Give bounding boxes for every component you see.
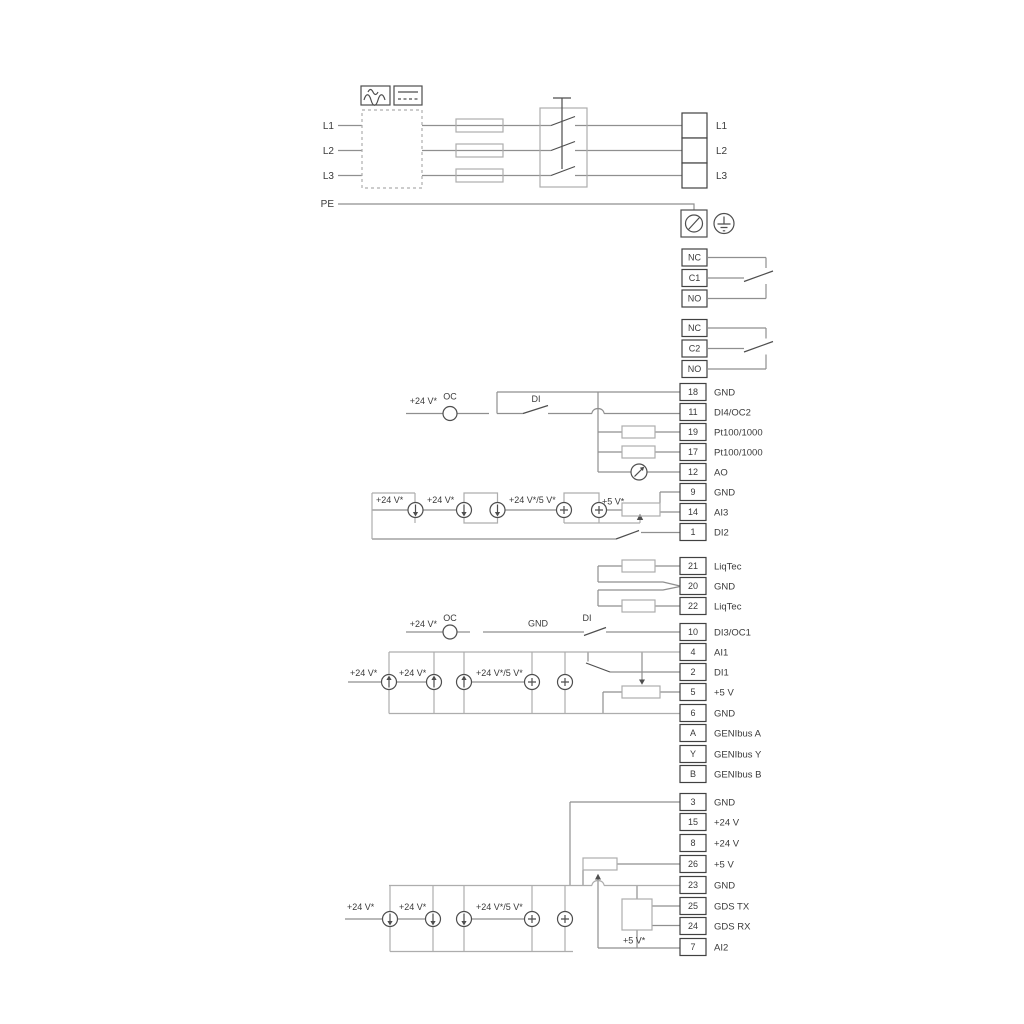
- terminal-number: 15: [688, 817, 698, 827]
- terminal-label: +24 V: [714, 817, 740, 828]
- terminal-group-middle: 10DI3/OC14AI12DI15+5 V6GNDAGENIbus AYGEN…: [680, 624, 762, 783]
- potentiometer-icon: [583, 858, 617, 870]
- io-upper-rails: [372, 493, 640, 539]
- label-l1-left: L1: [323, 121, 335, 132]
- source-symbols: [382, 503, 607, 927]
- terminal-label: AI1: [714, 647, 728, 658]
- label-l2-right: L2: [716, 146, 728, 157]
- current-source-icon: [457, 675, 472, 690]
- label-di: DI: [583, 613, 592, 623]
- current-source-icon: [490, 503, 505, 518]
- terminal-number: 8: [690, 838, 695, 848]
- voltage-source-icon: [525, 675, 540, 690]
- terminal-row-12: 12AO: [680, 464, 728, 481]
- terminal-number: 2: [690, 667, 695, 677]
- relay-2-terminals: NCC2NO: [682, 320, 707, 378]
- terminal-label: Pt100/1000: [714, 427, 763, 438]
- label-24v: +24 V*: [410, 619, 438, 629]
- wiring-diagram: L1 L2 L3 PE L1L2L3: [0, 0, 1024, 1024]
- label-oc: OC: [443, 613, 457, 623]
- ac-symbol-icon: [361, 86, 390, 105]
- terminal-row-24: 24GDS RX: [680, 918, 751, 935]
- current-source-icon: [426, 912, 441, 927]
- relay-1-contact-icon: [744, 271, 773, 282]
- terminal-number: A: [690, 728, 696, 738]
- terminal-label: DI3/OC1: [714, 627, 751, 638]
- resistor-icon: [622, 426, 655, 438]
- label-24v: +24 V*: [410, 396, 438, 406]
- power-terminal-box: [682, 113, 707, 138]
- ai2-arrow-icon: [595, 874, 601, 880]
- relay-terminal-label: C1: [689, 273, 701, 283]
- terminal-row-17: 17Pt100/1000: [680, 444, 763, 461]
- relay-1-wires: [707, 258, 766, 299]
- terminal-label: GND: [714, 581, 735, 592]
- terminal-row-11: 11DI4/OC2: [680, 404, 751, 421]
- terminal-number: B: [690, 769, 696, 779]
- pot-wiper-arrow-icon: [637, 514, 643, 520]
- terminal-number: 4: [690, 647, 695, 657]
- terminal-row-21: 21LiqTec: [680, 558, 742, 575]
- label-24v: +24 V*: [399, 902, 427, 912]
- terminal-row-25: 25GDS TX: [680, 898, 750, 915]
- terminal-number: 12: [688, 467, 698, 477]
- terminal-row-18: 18GND: [680, 384, 735, 401]
- label-gnd: GND: [528, 619, 549, 629]
- terminal-row-Y: YGENIbus Y: [680, 746, 762, 763]
- terminal-label: AI2: [714, 942, 728, 953]
- terminal-number: 19: [688, 427, 698, 437]
- terminal-number: 3: [690, 797, 695, 807]
- terminal-label: GND: [714, 387, 735, 398]
- terminal-label: LiqTec: [714, 601, 742, 612]
- terminal-label: GDS TX: [714, 901, 750, 912]
- current-source-icon: [408, 503, 423, 518]
- terminal-label: DI4/OC2: [714, 407, 751, 418]
- label-24v-5v: +24 V*/5 V*: [509, 495, 556, 505]
- terminal-label: GDS RX: [714, 921, 751, 932]
- di4-switch-contact-icon: [523, 406, 548, 414]
- relay-terminal-label: NO: [688, 364, 702, 374]
- terminal-row-20: 20GND: [680, 578, 735, 595]
- terminal-row-22: 22LiqTec: [680, 598, 742, 615]
- di2-switch-contact-icon: [616, 531, 639, 540]
- resistor-icon: [622, 600, 655, 612]
- current-source-icon: [457, 503, 472, 518]
- terminal-row-19: 19Pt100/1000: [680, 424, 763, 441]
- terminal-number: 21: [688, 561, 698, 571]
- pe-terminal-icon: [681, 210, 707, 237]
- label-24v: +24 V*: [347, 902, 375, 912]
- terminal-number: 10: [688, 627, 698, 637]
- io-liqtec-section: 21LiqTec20GND22LiqTec: [598, 558, 742, 615]
- terminal-row-15: 15+24 V: [680, 814, 740, 831]
- terminal-label: +5 V: [714, 859, 734, 870]
- relay-terminal-label: C2: [689, 344, 701, 354]
- label-24v: +24 V*: [399, 668, 427, 678]
- terminal-number: 23: [688, 880, 698, 890]
- label-24v: +24 V*: [376, 495, 404, 505]
- terminal-label: DI2: [714, 527, 729, 538]
- potentiometer-icon: [622, 503, 660, 516]
- current-source-icon: [457, 912, 472, 927]
- io-lower-wires: [345, 802, 680, 948]
- open-collector-icon: [443, 407, 457, 421]
- terminal-number: 24: [688, 921, 698, 931]
- voltage-source-icon: [557, 503, 572, 518]
- voltage-source-icon: [525, 912, 540, 927]
- terminal-row-4: 4AI1: [680, 644, 728, 661]
- terminal-label: GND: [714, 487, 735, 498]
- terminal-row-6: 6GND: [680, 705, 735, 722]
- voltage-source-icon: [558, 675, 573, 690]
- label-24v: +24 V*: [350, 668, 378, 678]
- terminal-label: GENIbus Y: [714, 749, 762, 760]
- open-collector-icon: [443, 625, 457, 639]
- earth-icon: [714, 214, 734, 234]
- terminal-number: 11: [688, 407, 697, 417]
- terminal-number: 18: [688, 387, 698, 397]
- current-source-icon: [427, 675, 442, 690]
- label-l2-left: L2: [323, 146, 335, 157]
- ao-meter-icon: [631, 464, 647, 480]
- terminal-number: 9: [690, 487, 695, 497]
- filter-box: [362, 110, 422, 188]
- relay-2-wires: [707, 328, 766, 369]
- resistor-icon: [622, 560, 655, 572]
- terminal-row-B: BGENIbus B: [680, 766, 762, 783]
- gds-sensor-box: [622, 899, 652, 930]
- terminal-label: AO: [714, 467, 728, 478]
- power-terminal-box: [682, 138, 707, 163]
- terminal-row-3: 3GND: [680, 794, 735, 811]
- terminal-number: 22: [688, 601, 698, 611]
- terminal-row-2: 2DI1: [680, 664, 729, 681]
- potentiometer-symbols: [583, 503, 660, 870]
- terminal-label: +5 V: [714, 687, 734, 698]
- terminal-number: 7: [690, 942, 695, 952]
- terminal-label: LiqTec: [714, 561, 742, 572]
- io-middle-section: +24 V* OC GND DI +24 V* +24 V* +24 V*/5 …: [348, 613, 762, 783]
- terminal-row-7: 7AI2: [680, 939, 728, 956]
- terminal-number: 17: [688, 447, 698, 457]
- label-l3-right: L3: [716, 171, 728, 182]
- wiring-diagram-page: L1 L2 L3 PE L1L2L3: [0, 0, 1024, 1024]
- label-l1-right: L1: [716, 121, 728, 132]
- power-terminal-box: [682, 163, 707, 188]
- terminal-number: 25: [688, 901, 698, 911]
- relay-1-terminals: NCC1NO: [682, 249, 707, 307]
- terminal-row-23: 23GND: [680, 877, 735, 894]
- label-5v: +5 V*: [623, 936, 646, 946]
- terminal-number: 1: [690, 527, 695, 537]
- voltage-source-icon: [558, 912, 573, 927]
- terminal-row-14: 14AI3: [680, 504, 728, 521]
- di1-switch-contact-icon: [586, 663, 610, 672]
- voltage-source-icon: [592, 503, 607, 518]
- current-source-icon: [383, 912, 398, 927]
- phase-wires: [338, 126, 682, 176]
- label-oc: OC: [443, 392, 457, 402]
- current-source-icon: [382, 675, 397, 690]
- label-pe-left: PE: [321, 199, 335, 210]
- power-terminal-block: L1L2L3: [682, 113, 728, 188]
- terminal-number: 5: [690, 687, 695, 697]
- terminal-row-9: 9GND: [680, 484, 735, 501]
- relay-terminal-label: NC: [688, 323, 701, 333]
- terminal-label: DI1: [714, 667, 729, 678]
- dc-symbol-icon: [394, 86, 422, 105]
- terminal-row-1: 1DI2: [680, 524, 729, 541]
- relay-2-contact-icon: [744, 342, 773, 353]
- terminal-label: GND: [714, 708, 735, 719]
- relay-2-section: NCC2NO: [682, 320, 773, 378]
- label-24v-5v: +24 V*/5 V*: [476, 902, 523, 912]
- terminal-group-lower: 3GND15+24 V8+24 V26+5 V23GND25GDS TX24GD…: [680, 794, 751, 956]
- relay-1-section: NCC1NO: [682, 249, 773, 307]
- terminal-number: 6: [690, 708, 695, 718]
- label-l3-left: L3: [323, 171, 335, 182]
- terminal-row-10: 10DI3/OC1: [680, 624, 751, 641]
- power-input-section: L1 L2 L3 PE L1L2L3: [321, 86, 734, 237]
- terminal-row-A: AGENIbus A: [680, 725, 762, 742]
- terminal-group-liqtec: 21LiqTec20GND22LiqTec: [680, 558, 742, 615]
- terminal-label: GND: [714, 797, 735, 808]
- relay-terminal-label: NC: [688, 253, 701, 263]
- terminal-label: GENIbus B: [714, 769, 762, 780]
- di3-switch-contact-icon: [584, 628, 606, 636]
- terminal-row-8: 8+24 V: [680, 835, 740, 852]
- terminal-label: AI3: [714, 507, 728, 518]
- terminal-group-upper: 18GND11DI4/OC219Pt100/100017Pt100/100012…: [680, 384, 763, 541]
- terminal-row-5: 5+5 V: [680, 684, 734, 701]
- terminal-label: GND: [714, 880, 735, 891]
- terminal-row-26: 26+5 V: [680, 856, 734, 873]
- label-24v: +24 V*: [427, 495, 455, 505]
- ai1-arrow-icon: [639, 680, 645, 685]
- terminal-number: 26: [688, 859, 698, 869]
- terminal-label: +24 V: [714, 838, 740, 849]
- label-5v: +5 V*: [602, 497, 625, 507]
- terminal-label: GENIbus A: [714, 728, 762, 739]
- io-middle-rails: [389, 652, 680, 714]
- label-di: DI: [532, 394, 541, 404]
- terminal-label: Pt100/1000: [714, 447, 763, 458]
- terminal-number: 20: [688, 581, 698, 591]
- relay-terminal-label: NO: [688, 294, 702, 304]
- terminal-number: 14: [688, 507, 698, 517]
- potentiometer-icon: [622, 686, 660, 698]
- label-24v-5v: +24 V*/5 V*: [476, 668, 523, 678]
- pe-wire: [338, 204, 694, 210]
- io-lower-section: +24 V* +24 V* +24 V*/5 V* +5 V* 3GND15+2…: [345, 794, 751, 956]
- resistor-icon: [622, 446, 655, 458]
- terminal-number: Y: [690, 749, 696, 759]
- disconnect-switch-icon: [540, 98, 587, 187]
